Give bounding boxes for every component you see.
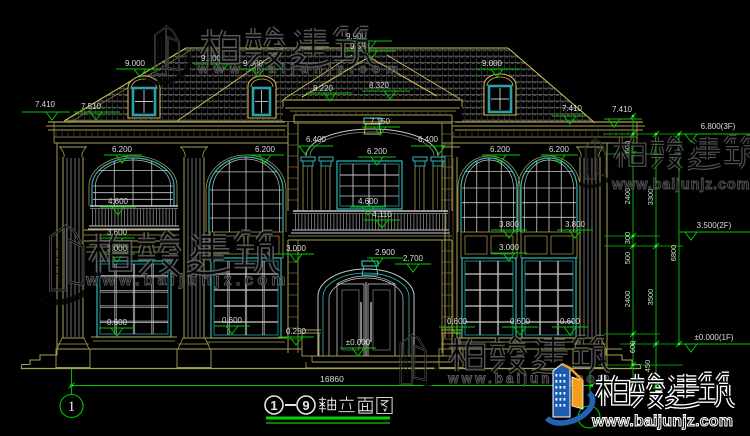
svg-text:6.200: 6.200 xyxy=(549,145,570,154)
svg-text:3.800: 3.800 xyxy=(565,220,586,229)
svg-text:±0.000: ±0.000 xyxy=(346,338,371,347)
svg-text:0.600: 0.600 xyxy=(107,318,128,327)
svg-text:500: 500 xyxy=(623,252,632,265)
svg-text:3500: 3500 xyxy=(646,289,655,306)
svg-text:8.220: 8.220 xyxy=(313,84,334,93)
svg-text:7.150: 7.150 xyxy=(370,117,391,126)
svg-text:2.700: 2.700 xyxy=(403,254,424,263)
svg-text:6.200: 6.200 xyxy=(367,147,388,156)
svg-text:6800: 6800 xyxy=(669,245,678,262)
svg-text:1: 1 xyxy=(270,398,277,413)
svg-text:4.600: 4.600 xyxy=(108,197,129,206)
svg-text:0.600: 0.600 xyxy=(510,317,531,326)
svg-text:2.900: 2.900 xyxy=(375,248,396,257)
svg-text:7.410: 7.410 xyxy=(612,105,633,114)
svg-text:6.400: 6.400 xyxy=(306,135,327,144)
svg-text:3.800: 3.800 xyxy=(499,220,520,229)
svg-text:9: 9 xyxy=(302,398,309,413)
svg-text:8.320: 8.320 xyxy=(369,81,390,90)
svg-text:6.200: 6.200 xyxy=(112,145,133,154)
svg-text:0.600: 0.600 xyxy=(447,317,468,326)
svg-text:7.510: 7.510 xyxy=(81,102,102,111)
svg-text:9.000: 9.000 xyxy=(125,59,146,68)
svg-text:16860: 16860 xyxy=(320,374,344,384)
svg-text:www.baijunjz.com: www.baijunjz.com xyxy=(611,177,750,193)
svg-text:www.baijunjz.com: www.baijunjz.com xyxy=(591,413,733,430)
svg-text:7.410: 7.410 xyxy=(35,100,56,109)
svg-text:6.200: 6.200 xyxy=(255,145,276,154)
svg-text:2400: 2400 xyxy=(623,291,632,308)
svg-text:3.000: 3.000 xyxy=(286,244,307,253)
svg-text:450: 450 xyxy=(643,360,652,373)
svg-text:4.110: 4.110 xyxy=(372,210,392,219)
svg-text:600: 600 xyxy=(628,341,637,354)
svg-text:6.800(3F): 6.800(3F) xyxy=(701,122,736,131)
svg-text:0.600: 0.600 xyxy=(222,316,243,325)
svg-text:300: 300 xyxy=(623,232,632,245)
svg-text:3.500(2F): 3.500(2F) xyxy=(697,221,732,230)
svg-text:9.000: 9.000 xyxy=(482,59,503,68)
svg-text:±0.000(1F): ±0.000(1F) xyxy=(694,333,733,342)
svg-text:3.600: 3.600 xyxy=(107,228,128,237)
svg-text:6.400: 6.400 xyxy=(418,135,439,144)
svg-text:7.410: 7.410 xyxy=(562,104,583,113)
svg-text:0.250: 0.250 xyxy=(286,327,307,336)
svg-text:4.600: 4.600 xyxy=(358,197,379,206)
svg-text:0.600: 0.600 xyxy=(560,317,581,326)
svg-text:3.000: 3.000 xyxy=(499,243,520,252)
svg-text:6.200: 6.200 xyxy=(490,145,511,154)
svg-text:1: 1 xyxy=(68,399,76,415)
